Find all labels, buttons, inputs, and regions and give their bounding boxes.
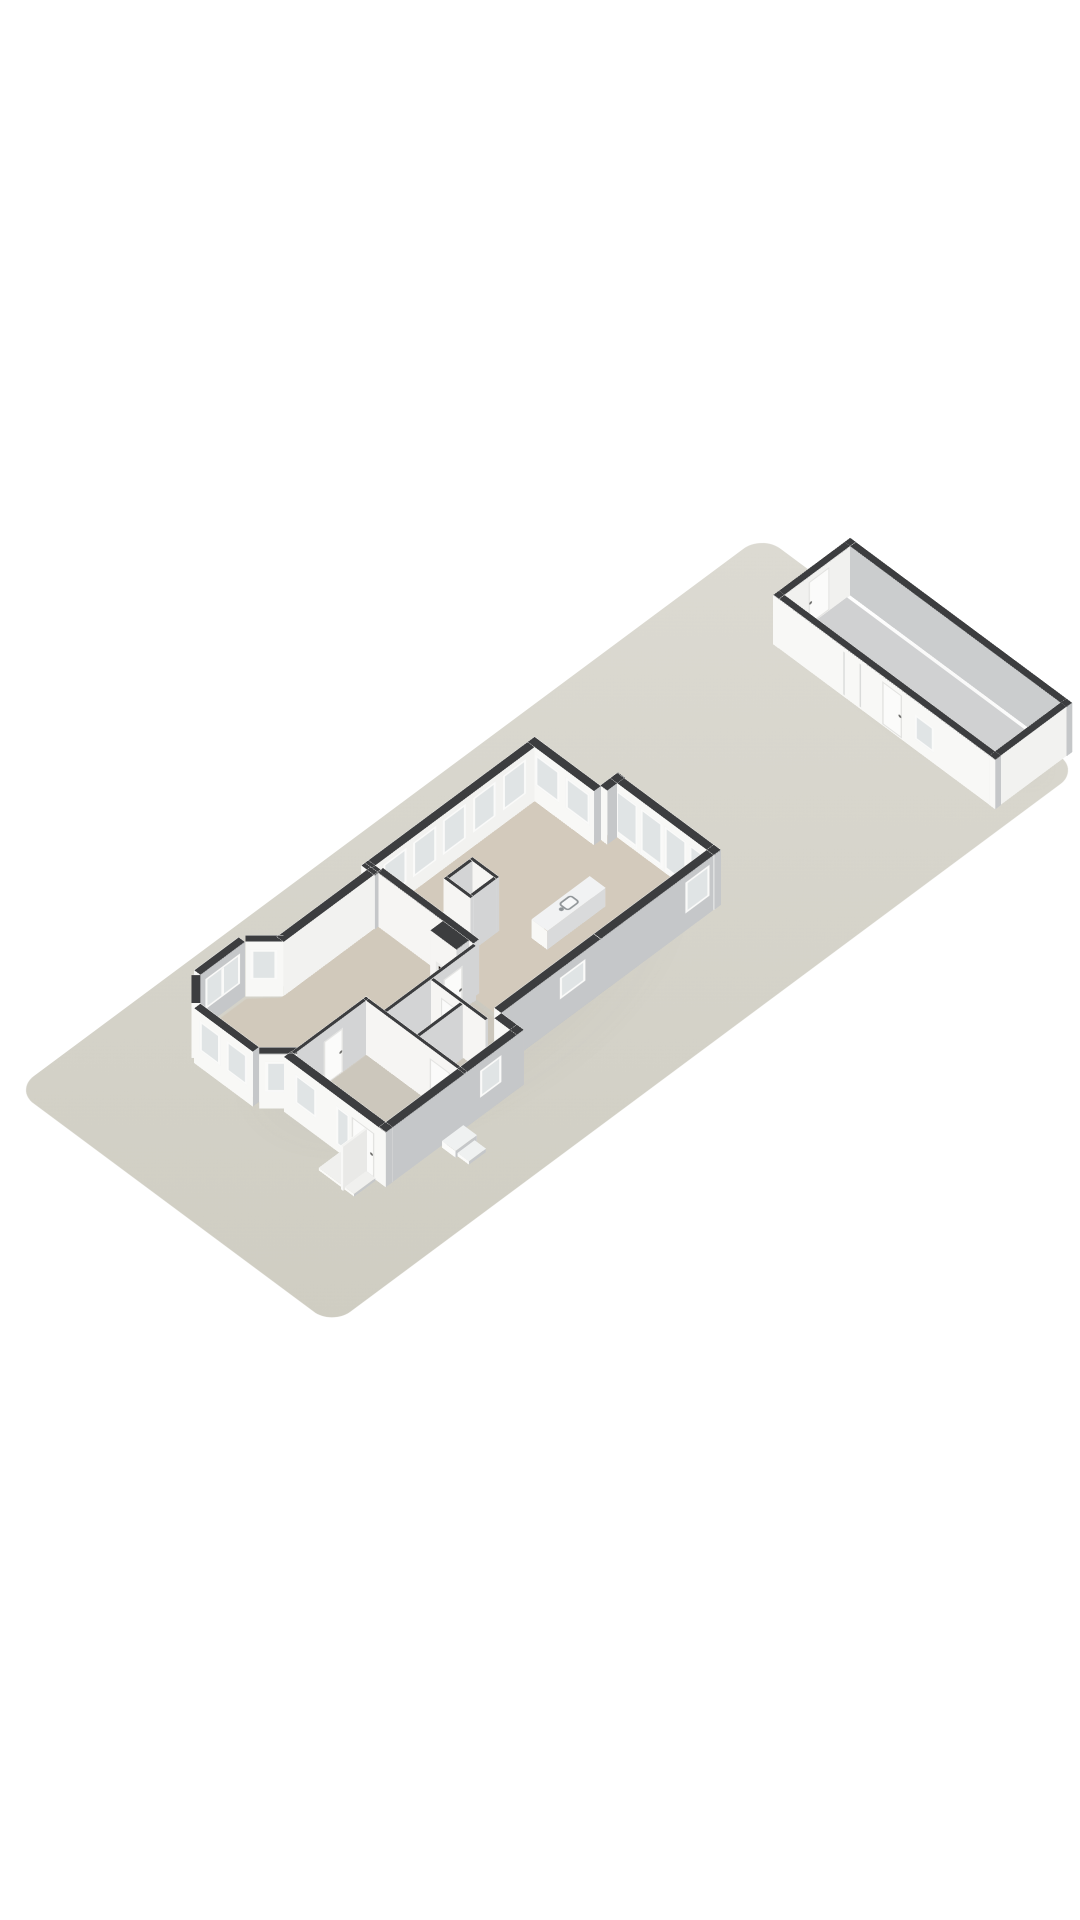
floorplan-3d-render (0, 0, 1080, 1920)
wall-end (995, 756, 1001, 809)
door-handle-dot (340, 1050, 343, 1055)
wall-end (714, 850, 721, 910)
wall-face (245, 942, 283, 997)
window (915, 714, 934, 753)
wall-end (595, 786, 602, 846)
wall-cap (245, 935, 283, 942)
panel-seam (843, 651, 845, 695)
window (686, 865, 710, 914)
door-handle-dot (460, 987, 463, 992)
wall-end (496, 877, 499, 934)
panel-seam (859, 663, 861, 707)
window (250, 949, 277, 979)
wall-end (386, 1127, 393, 1187)
wall-cap (191, 975, 200, 1004)
door-handle-dot (809, 600, 812, 605)
wall-end (1066, 703, 1072, 756)
window (200, 1020, 221, 1066)
window (226, 1040, 247, 1086)
sink-tap-icon (558, 907, 565, 912)
window (480, 1055, 501, 1098)
window (560, 959, 585, 999)
wall-end (600, 786, 607, 846)
door-handle-dot (371, 1151, 374, 1156)
window (295, 1074, 316, 1119)
door-handle-dot (899, 714, 902, 719)
